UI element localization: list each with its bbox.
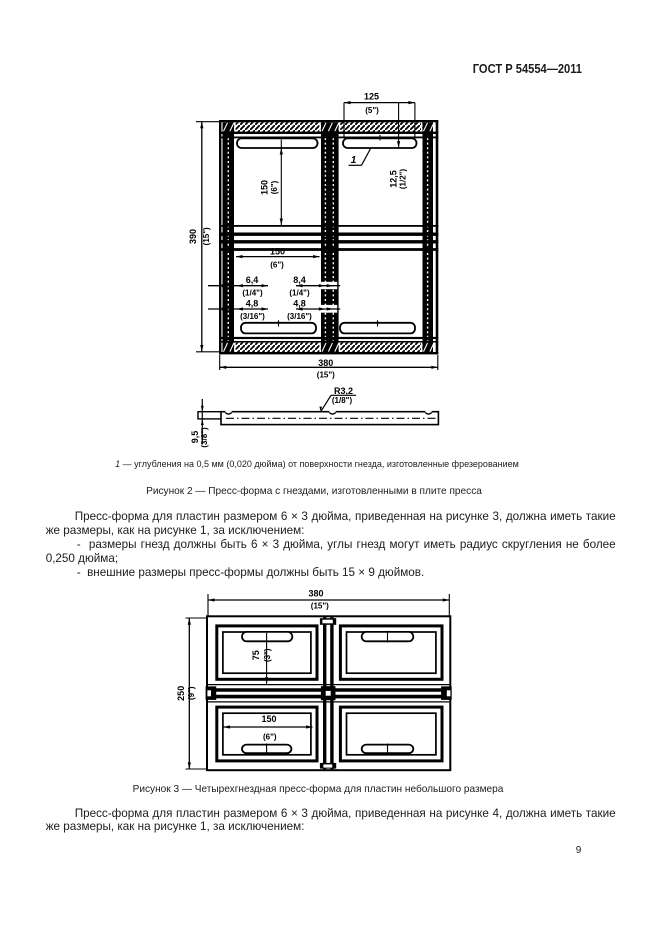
svg-text:(15"): (15")	[311, 602, 329, 611]
svg-text:(1/4"): (1/4")	[242, 289, 263, 298]
svg-text:75: 75	[251, 650, 261, 660]
svg-text:(9"): (9")	[187, 686, 196, 700]
svg-text:8,4: 8,4	[293, 275, 306, 285]
svg-text:(15"): (15")	[202, 227, 211, 245]
svg-text:(3/16"): (3/16")	[240, 312, 265, 321]
svg-text:390: 390	[188, 229, 198, 244]
svg-text:380: 380	[318, 358, 333, 368]
svg-text:(1/2"): (1/2")	[398, 169, 407, 190]
svg-text:(3/8"): (3/8")	[200, 427, 209, 448]
svg-text:150: 150	[261, 714, 276, 724]
svg-text:380: 380	[308, 589, 323, 599]
svg-text:(5"): (5")	[365, 106, 379, 115]
svg-text:4,8: 4,8	[246, 298, 259, 308]
svg-text:125: 125	[364, 92, 379, 102]
svg-text:(3/16"): (3/16")	[287, 312, 312, 321]
svg-text:(15"): (15")	[317, 371, 335, 380]
svg-text:150: 150	[260, 180, 270, 195]
svg-text:12,5: 12,5	[389, 170, 399, 188]
svg-text:6,4: 6,4	[246, 275, 259, 285]
svg-text:(6"): (6")	[263, 733, 277, 742]
svg-text:(6"): (6")	[270, 180, 279, 194]
svg-text:1: 1	[351, 155, 357, 166]
svg-text:(1/8"): (1/8")	[332, 396, 353, 405]
svg-text:(6"): (6")	[270, 261, 284, 270]
svg-text:(3"): (3")	[263, 648, 272, 662]
svg-text:150: 150	[270, 247, 285, 257]
svg-text:R3,2: R3,2	[334, 386, 353, 396]
svg-text:250: 250	[176, 686, 186, 701]
svg-text:(1/4"): (1/4")	[289, 289, 310, 298]
svg-text:4,8: 4,8	[293, 298, 306, 308]
svg-text:9,5: 9,5	[190, 431, 200, 444]
